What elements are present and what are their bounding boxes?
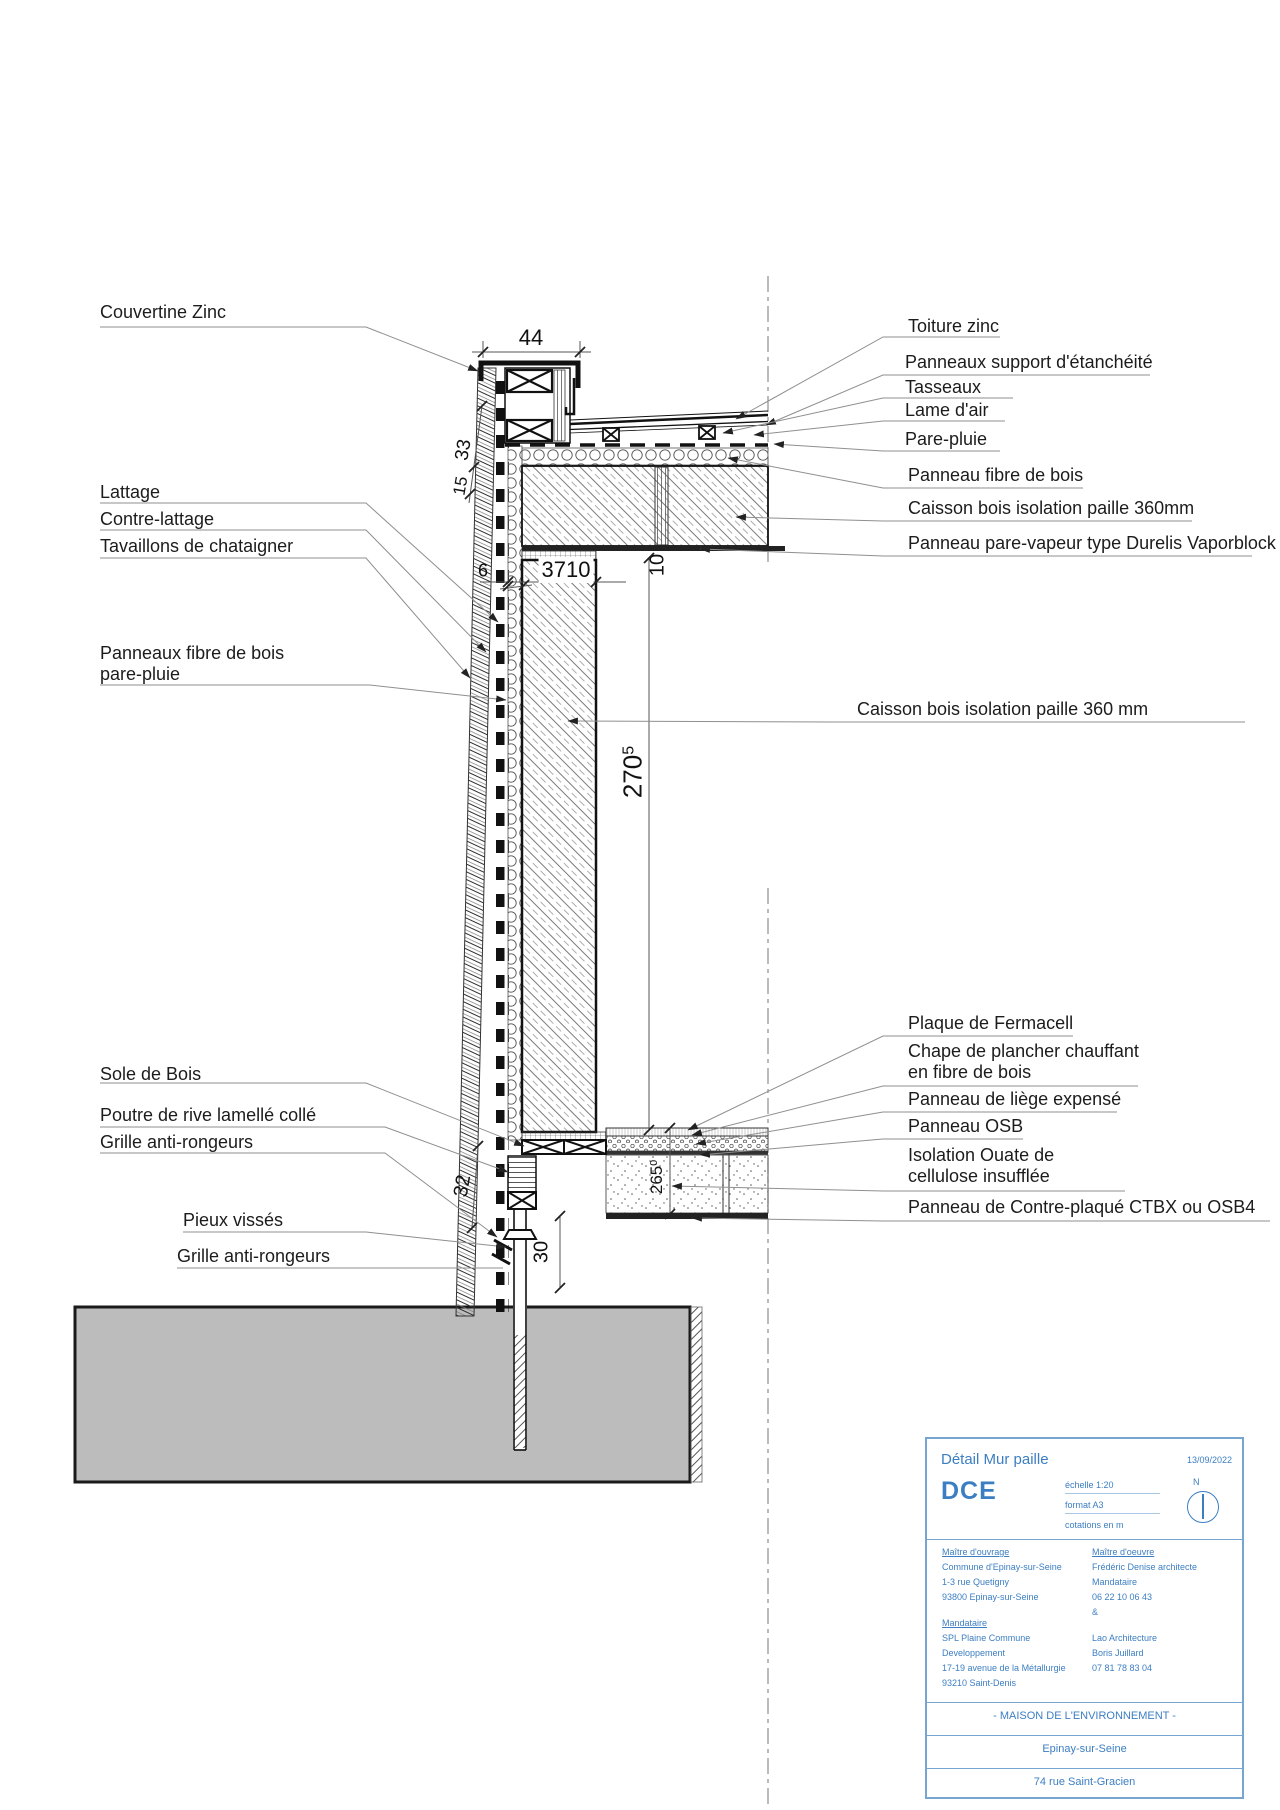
architect-line: Frédéric Denise architecte bbox=[1092, 1560, 1197, 1575]
architect2-line: Lao Architecture bbox=[1092, 1631, 1157, 1646]
project-name: - MAISON DE L'ENVIRONNEMENT - bbox=[927, 1710, 1242, 1722]
dim-main: 265 bbox=[647, 1166, 666, 1194]
architect2-line: 07 81 78 83 04 bbox=[1092, 1661, 1152, 1676]
label-panneaux-support: Panneaux support d'étanchéité bbox=[905, 352, 1153, 373]
label-ouate: Isolation Ouate de cellulose insufflée bbox=[908, 1145, 1054, 1187]
owner-heading: Maître d'ouvrage bbox=[942, 1545, 1009, 1560]
label-line-1: Chape de plancher chauffant bbox=[908, 1041, 1139, 1062]
divider bbox=[927, 1539, 1242, 1540]
drawing-title: Détail Mur paille bbox=[941, 1451, 1049, 1468]
dim-30: 30 bbox=[531, 1241, 554, 1263]
label-panneaux-fibre-pare-pluie: Panneaux fibre de bois pare-pluie bbox=[100, 643, 284, 685]
label-osb: Panneau OSB bbox=[908, 1116, 1023, 1137]
agent-line: 93210 Saint-Denis bbox=[942, 1676, 1016, 1691]
divider bbox=[927, 1735, 1242, 1736]
owner-line: 93800 Epinay-sur-Seine bbox=[942, 1590, 1039, 1605]
label-pieux-visses: Pieux vissés bbox=[183, 1210, 283, 1231]
north-arrow-icon bbox=[1187, 1491, 1219, 1523]
dim-6: 6 bbox=[478, 561, 488, 582]
dim-2650: 2650 bbox=[647, 1160, 667, 1194]
dim-15: 15 bbox=[450, 475, 473, 497]
owner-line: 1-3 rue Quetigny bbox=[942, 1575, 1009, 1590]
label-caisson-paille-wall: Caisson bois isolation paille 360 mm bbox=[857, 699, 1148, 720]
scale-note: échelle 1:20 bbox=[1065, 1478, 1160, 1494]
label-poutre-de-rive: Poutre de rive lamellé collé bbox=[100, 1105, 316, 1126]
label-caisson-paille-roof: Caisson bois isolation paille 360mm bbox=[908, 498, 1194, 519]
project-address: 74 rue Saint-Gracien bbox=[927, 1776, 1242, 1788]
label-line-1: Panneaux fibre de bois bbox=[100, 643, 284, 664]
dim-parapet-44: 44 bbox=[519, 325, 543, 351]
label-chape: Chape de plancher chauffant en fibre de … bbox=[908, 1041, 1139, 1083]
architect-line: & bbox=[1092, 1605, 1098, 1620]
label-lattage: Lattage bbox=[100, 482, 160, 503]
label-panneau-fibre-de-bois: Panneau fibre de bois bbox=[908, 465, 1083, 486]
label-line-1: Isolation Ouate de bbox=[908, 1145, 1054, 1166]
north-letter: N bbox=[1193, 1477, 1200, 1487]
title-block: Détail Mur paille 13/09/2022 DCE échelle… bbox=[925, 1437, 1244, 1799]
agent-line: 17-19 avenue de la Métallurgie bbox=[942, 1661, 1066, 1676]
project-city: Epinay-sur-Seine bbox=[927, 1743, 1242, 1755]
floor-assembly bbox=[606, 1128, 768, 1219]
drawing-date: 13/09/2022 bbox=[1187, 1453, 1232, 1468]
agent-heading: Mandataire bbox=[942, 1616, 987, 1631]
north-needle bbox=[1202, 1494, 1204, 1519]
straw-wall bbox=[522, 551, 596, 1132]
label-line-2: pare-pluie bbox=[100, 664, 284, 685]
owner-line: Commune d'Epinay-sur-Seine bbox=[942, 1560, 1062, 1575]
label-line-2: cellulose insufflée bbox=[908, 1166, 1054, 1187]
divider bbox=[927, 1768, 1242, 1769]
dim-33: 33 bbox=[451, 438, 476, 463]
architect2-line: Boris Juillard bbox=[1092, 1646, 1144, 1661]
divider bbox=[927, 1702, 1242, 1703]
dim-270-5: 2705 bbox=[618, 746, 649, 798]
units-note: cotations en m bbox=[1065, 1518, 1160, 1533]
label-grille-anti-rongeurs-1: Grille anti-rongeurs bbox=[100, 1132, 253, 1153]
label-tasseaux: Tasseaux bbox=[905, 377, 981, 398]
label-contreplaque: Panneau de Contre-plaqué CTBX ou OSB4 bbox=[908, 1197, 1255, 1218]
architect-heading: Maître d'oeuvre bbox=[1092, 1545, 1154, 1560]
agent-line: SPL Plaine Commune bbox=[942, 1631, 1030, 1646]
label-contre-lattage: Contre-lattage bbox=[100, 509, 214, 530]
dim-10: 10 bbox=[647, 554, 670, 576]
label-sole-de-bois: Sole de Bois bbox=[100, 1064, 201, 1085]
architect-line: 06 22 10 06 43 bbox=[1092, 1590, 1152, 1605]
dim-sup: 0 bbox=[648, 1160, 660, 1166]
architect-line: Mandataire bbox=[1092, 1575, 1137, 1590]
label-pare-pluie: Pare-pluie bbox=[905, 429, 987, 450]
label-tavaillons: Tavaillons de chataigner bbox=[100, 536, 293, 557]
label-toiture-zinc: Toiture zinc bbox=[908, 316, 999, 337]
dim-sup: 5 bbox=[619, 746, 637, 755]
dim-main: 270 bbox=[618, 755, 648, 798]
label-grille-anti-rongeurs-2: Grille anti-rongeurs bbox=[177, 1246, 330, 1267]
label-fermacell: Plaque de Fermacell bbox=[908, 1013, 1073, 1034]
label-couvertine-zinc: Couvertine Zinc bbox=[100, 302, 226, 323]
label-liege: Panneau de liège expensé bbox=[908, 1089, 1121, 1110]
format-note: format A3 bbox=[1065, 1498, 1160, 1514]
label-lame-dair: Lame d'air bbox=[905, 400, 988, 421]
dim-32: 32 bbox=[450, 1173, 477, 1199]
agent-line: Developpement bbox=[942, 1646, 1005, 1661]
ground-block bbox=[75, 1307, 702, 1482]
detail-drawing-page: Couvertine Zinc Lattage Contre-lattage T… bbox=[0, 0, 1280, 1810]
label-pare-vapeur: Panneau pare-vapeur type Durelis Vaporbl… bbox=[908, 533, 1276, 554]
dim-3710: 3710 bbox=[539, 557, 594, 583]
label-line-2: en fibre de bois bbox=[908, 1062, 1139, 1083]
phase-dce: DCE bbox=[941, 1477, 997, 1506]
